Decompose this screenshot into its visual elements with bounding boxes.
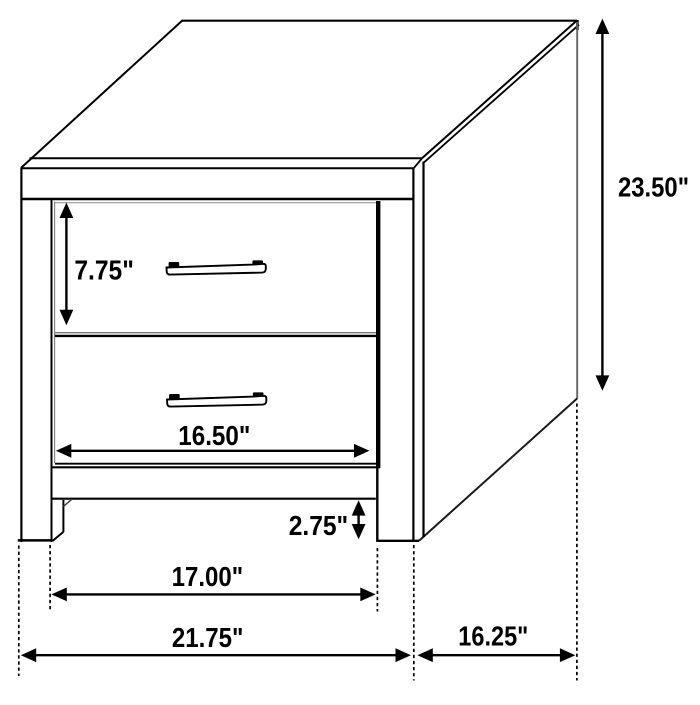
svg-text:17.00": 17.00" [172, 561, 244, 592]
svg-text:16.50": 16.50" [178, 420, 250, 451]
svg-text:2.75": 2.75" [289, 510, 349, 541]
svg-text:16.25": 16.25" [458, 621, 528, 652]
svg-text:23.50": 23.50" [618, 172, 689, 203]
svg-text:21.75": 21.75" [172, 622, 244, 653]
svg-text:7.75": 7.75" [74, 255, 133, 286]
